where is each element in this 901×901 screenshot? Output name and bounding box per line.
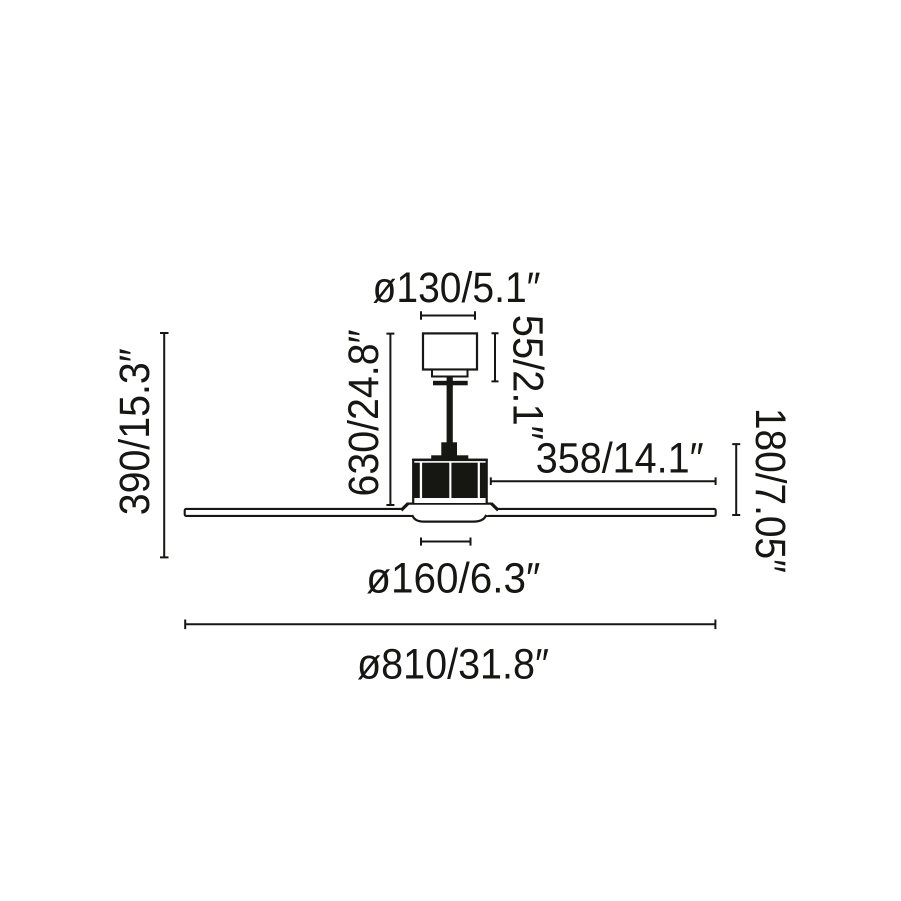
- svg-text:55/2.1″: 55/2.1″: [503, 315, 551, 440]
- svg-text:ø130/5.1″: ø130/5.1″: [373, 264, 541, 312]
- svg-text:180/7.05″: 180/7.05″: [746, 408, 794, 573]
- svg-text:630/24.8″: 630/24.8″: [340, 330, 388, 497]
- svg-text:ø810/31.8″: ø810/31.8″: [357, 640, 549, 688]
- svg-text:390/15.3″: 390/15.3″: [111, 348, 159, 515]
- svg-text:358/14.1″: 358/14.1″: [536, 435, 704, 483]
- svg-text:ø160/6.3″: ø160/6.3″: [366, 555, 540, 603]
